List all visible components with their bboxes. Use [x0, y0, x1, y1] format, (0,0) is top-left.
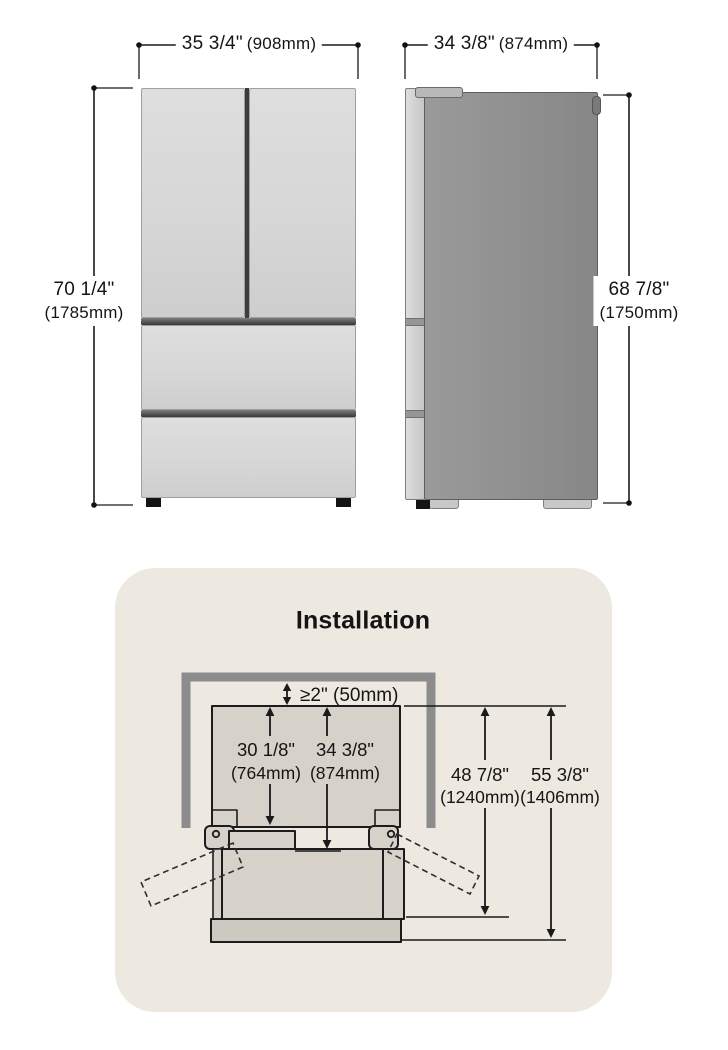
right-door-open-90	[383, 849, 404, 919]
front-separator-upper	[141, 318, 356, 325]
installation-diagram: ≥2" (50mm) 30 1/8" (764mm) 34 3/8" (874m…	[115, 640, 612, 1012]
front-width-dimension: 35 3/4"(908mm)	[176, 31, 322, 57]
right-hinge	[369, 826, 398, 849]
front-height-inches: 70 1/4"	[44, 278, 123, 301]
side-depth-mm: (874mm)	[499, 34, 568, 53]
side-cabinet-body	[424, 92, 598, 500]
spec-sheet: 35 3/4"(908mm) 34 3/8"(874mm) 70 1/4" (1…	[0, 0, 728, 1050]
depth-without-door-inches: 30 1/8"	[237, 739, 295, 760]
right-hinge-pin	[388, 831, 394, 837]
side-door-gap-lower	[406, 410, 424, 418]
front-separator-lower	[141, 410, 356, 417]
front-height-dimension: 70 1/4" (1785mm)	[38, 276, 129, 326]
depth-fully-open-mm: (1406mm)	[520, 787, 600, 807]
side-height-inches: 68 7/8"	[599, 278, 678, 301]
left-door-open-90	[213, 849, 222, 919]
front-left-door	[141, 88, 245, 318]
side-depth-inches: 34 3/8"	[434, 33, 495, 54]
side-height-mm: (1750mm)	[599, 301, 678, 324]
depth-door-open-mm: (1240mm)	[440, 787, 520, 807]
drawer-front-extended	[211, 919, 401, 942]
fridge-top-view	[205, 706, 404, 942]
front-left-foot	[146, 498, 161, 507]
depth-with-door-mm: (874mm)	[310, 763, 380, 783]
front-right-foot	[336, 498, 351, 507]
side-height-dimension: 68 7/8" (1750mm)	[593, 276, 684, 326]
front-height-mm: (1785mm)	[44, 301, 123, 324]
depth-with-door-inches: 34 3/8"	[316, 739, 374, 760]
dimension-lines-layer	[0, 0, 728, 540]
clearance-label: ≥2" (50mm)	[300, 685, 398, 706]
depth-without-door-mm: (764mm)	[231, 763, 301, 783]
side-rear-cap	[592, 96, 601, 115]
side-front-foot	[416, 500, 430, 509]
side-depth-dimension: 34 3/8"(874mm)	[428, 31, 574, 57]
front-right-door	[249, 88, 356, 318]
clearance-arrow	[283, 683, 291, 705]
front-middle-drawer	[141, 325, 356, 410]
depth-fully-open-inches: 55 3/8"	[531, 764, 589, 785]
depth-door-open-inches: 48 7/8"	[451, 764, 509, 785]
front-width-mm: (908mm)	[247, 34, 316, 53]
front-bottom-drawer	[141, 417, 356, 498]
side-door-gap-upper	[406, 318, 424, 326]
drawer-extended	[222, 849, 383, 919]
left-hinge-pin	[213, 831, 219, 837]
side-top-hinge	[415, 87, 463, 98]
installation-title: Installation	[296, 607, 430, 636]
side-door-edge	[405, 88, 425, 500]
front-width-inches: 35 3/4"	[182, 33, 243, 54]
